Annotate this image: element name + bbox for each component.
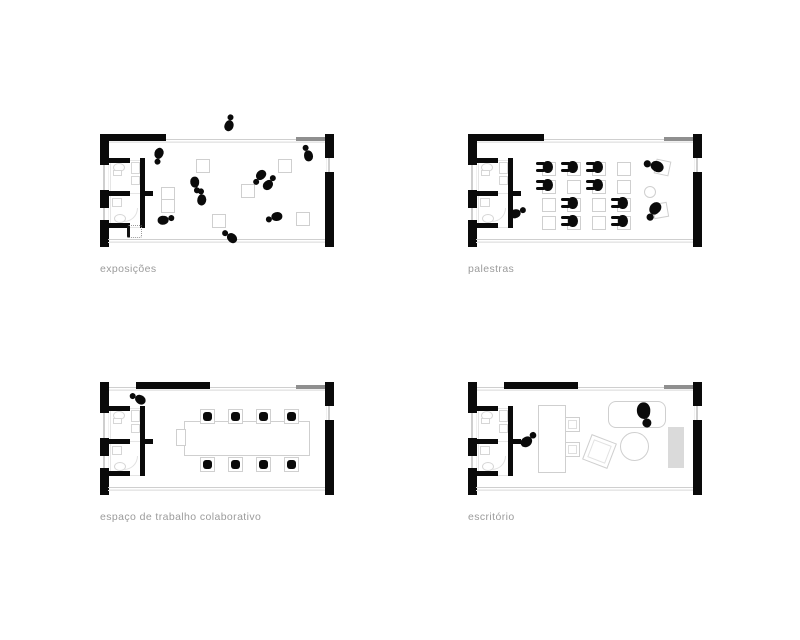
seated-person-figure [536, 161, 553, 174]
plan-label-escritorio: escritório [468, 511, 515, 523]
plan-label-palestras: palestras [468, 263, 514, 275]
window-left [103, 456, 105, 468]
window-right [696, 158, 698, 172]
wall-right [693, 420, 702, 495]
chair [617, 162, 631, 176]
plan-label-espaco-trabalho: espaço de trabalho colaborativo [100, 511, 261, 523]
pedestal [296, 212, 310, 226]
window-left [103, 208, 105, 220]
pedestal [212, 214, 226, 228]
bathroom-wall-stub [108, 471, 130, 476]
rug [668, 427, 684, 468]
sink-fixture [499, 424, 508, 433]
window-left [471, 413, 473, 438]
plan-label-exposicoes: exposições [100, 263, 157, 275]
glass-facade-top-inner [476, 390, 694, 391]
toilet-tank [481, 170, 490, 176]
wall-right [693, 172, 702, 247]
wall-right [325, 382, 334, 406]
glass-facade-top-inner [476, 142, 694, 143]
toilet-tank [481, 418, 490, 424]
sink-fixture [112, 198, 122, 207]
sink-fixture [131, 162, 140, 174]
wall-right [693, 382, 702, 406]
sink-fixture [112, 446, 122, 455]
sink-fixture [499, 162, 508, 174]
sculpture-object [127, 225, 142, 238]
chair-seat [231, 460, 240, 469]
plan-palestras [468, 132, 702, 248]
glass-facade-bottom [108, 239, 325, 240]
bathroom-wall-stub [476, 471, 498, 476]
seated-person-figure [561, 161, 578, 174]
glass-facade-top-inner [108, 142, 326, 143]
chair [592, 198, 606, 212]
chair [228, 409, 243, 424]
bathroom-wall-stub [145, 191, 153, 196]
seated-person-figure [611, 197, 628, 210]
wall-top [504, 382, 578, 389]
chair-seat [231, 412, 240, 421]
pedestal [278, 159, 292, 173]
window-left [471, 165, 473, 190]
window-left [103, 413, 105, 438]
glass-facade-bottom-inner [108, 242, 325, 243]
bathroom-wall-stub [476, 439, 498, 444]
chair [200, 457, 215, 472]
meeting-table [184, 421, 310, 456]
wall-top [476, 134, 544, 141]
bathroom-wall-stub [108, 439, 130, 444]
sink-fixture [499, 176, 508, 185]
chair-seat-outline [568, 420, 577, 429]
person-figure [219, 112, 240, 133]
stool [644, 186, 656, 198]
chair [256, 457, 271, 472]
chair-seat [203, 460, 212, 469]
pedestal [241, 184, 255, 198]
seated-person-figure [561, 197, 578, 210]
window-right [696, 406, 698, 420]
window-right [328, 406, 330, 420]
sink-fixture [499, 410, 508, 422]
sink-fixture [480, 198, 490, 207]
chair [200, 409, 215, 424]
bathroom-wall-stub [476, 191, 498, 196]
chair [617, 180, 631, 194]
glass-facade-bottom-inner [476, 242, 693, 243]
bathroom-wall-stub [476, 223, 498, 228]
glass-facade-bottom-inner [476, 490, 693, 491]
chair [256, 409, 271, 424]
seated-person-figure [611, 215, 628, 228]
sink-fixture [480, 446, 490, 455]
bathroom-wall-stub [108, 191, 130, 196]
glass-facade-bottom [476, 239, 693, 240]
window-left [471, 456, 473, 468]
chair-seat [259, 460, 268, 469]
wall-top [108, 134, 166, 141]
plan-exposicoes [100, 132, 334, 248]
wall-top [136, 382, 210, 389]
seated-person-figure [561, 215, 578, 228]
seated-person-figure [536, 179, 553, 192]
glass-facade-bottom [108, 487, 325, 488]
chair [284, 457, 299, 472]
window-left [471, 208, 473, 220]
office-desk [538, 405, 566, 473]
plan-escritorio [468, 380, 702, 496]
window-right [328, 158, 330, 172]
bathroom-wall-stub [145, 439, 153, 444]
wall-top-gray-segment [296, 137, 326, 141]
glass-facade-bottom-inner [108, 490, 325, 491]
chair [592, 216, 606, 230]
wall-top-gray-segment [296, 385, 326, 389]
window-left [103, 165, 105, 190]
chair-seat-outline [568, 445, 577, 454]
person-figure [520, 432, 539, 449]
chair-seat [259, 412, 268, 421]
toilet-tank [113, 418, 122, 424]
pedestal [196, 159, 210, 173]
wall-right [693, 134, 702, 158]
chair [542, 198, 556, 212]
toilet-tank [113, 170, 122, 176]
round-table [620, 432, 649, 461]
table-end-panel [176, 429, 186, 446]
sink-fixture [131, 410, 140, 422]
seated-person-figure [586, 179, 603, 192]
chair-seat [287, 460, 296, 469]
seated-person-figure [586, 161, 603, 174]
sink-fixture [131, 176, 140, 185]
chair-seat [203, 412, 212, 421]
wall-right [325, 172, 334, 247]
sink-fixture [131, 424, 140, 433]
wall-top-gray-segment [664, 385, 694, 389]
bathroom-wall-stub [513, 191, 521, 196]
glass-facade-bottom [476, 487, 693, 488]
plan-espaco-trabalho [100, 380, 334, 496]
chair [567, 180, 581, 194]
wall-right [325, 134, 334, 158]
wall-right [325, 420, 334, 495]
wall-top-gray-segment [664, 137, 694, 141]
chair [228, 457, 243, 472]
chair-seat [287, 412, 296, 421]
floor-plan-sheet: exposições [0, 0, 800, 640]
chair [542, 216, 556, 230]
chair [284, 409, 299, 424]
